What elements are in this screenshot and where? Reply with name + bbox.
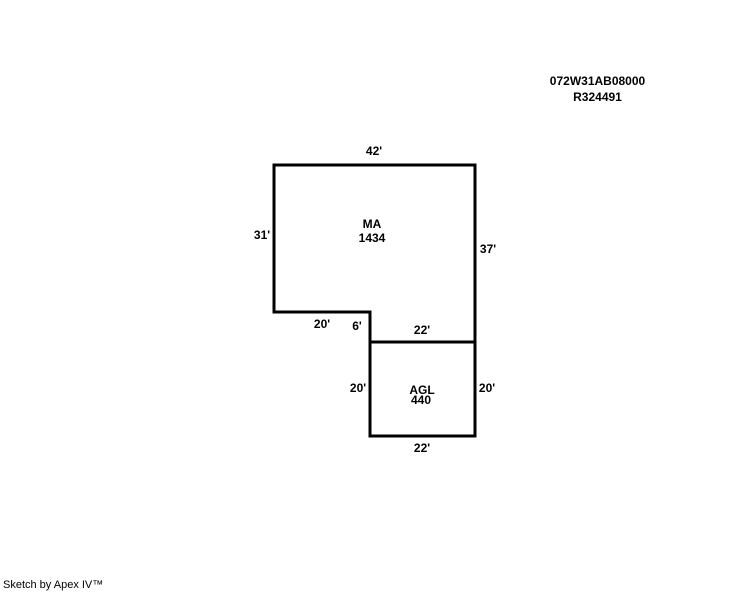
dim-ma-notch-side: 6' bbox=[352, 320, 362, 332]
ma-outline bbox=[274, 165, 475, 342]
dim-ma-top: 42' bbox=[366, 145, 382, 157]
dim-agl-left: 20' bbox=[350, 382, 366, 394]
area-ma-sqft: 1434 bbox=[359, 232, 386, 244]
footer-credit: Sketch by Apex IV™ bbox=[3, 579, 103, 591]
dim-agl-bottom: 22' bbox=[414, 442, 430, 454]
sketch-canvas bbox=[0, 0, 744, 595]
area-ma-code: MA bbox=[363, 218, 382, 230]
dim-agl-right: 20' bbox=[479, 382, 495, 394]
dim-ma-left: 31' bbox=[254, 229, 270, 241]
dim-ma-right: 37' bbox=[480, 243, 496, 255]
area-agl-sqft: 440 bbox=[411, 394, 431, 406]
dim-ma-notch-bottom: 20' bbox=[314, 318, 330, 330]
sketch-page: 072W31AB08000 R324491 42' 31' 37' MA 143… bbox=[0, 0, 744, 595]
dim-agl-top: 22' bbox=[414, 324, 430, 336]
